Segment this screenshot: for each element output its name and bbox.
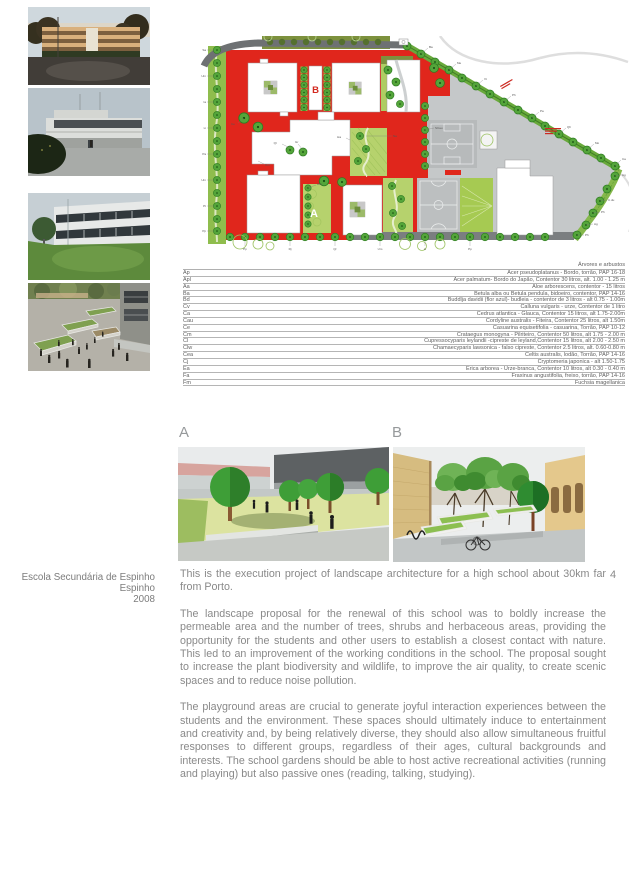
paragraph-playground: The playground areas are crucial to gene…: [180, 701, 606, 781]
plan-species-label: Li: [204, 126, 207, 130]
legend-species-code: Cau: [183, 318, 219, 324]
legend-species-desc: Acer palmatum- Bordo do Japão, Contentor…: [219, 277, 625, 283]
legend-row: Bd Buddlja davidii (flor azul)- budleia …: [183, 297, 625, 304]
plan-species-label: Pa: [540, 109, 544, 113]
plan-species-label: Na: [393, 134, 397, 138]
legend-row: Fa Fraxinus angustifolia, freixo, torrão…: [183, 373, 625, 380]
legend-species-code: Cl: [183, 338, 219, 344]
legend-row: Apl Acer palmatum- Bordo do Japão, Conte…: [183, 277, 625, 284]
legend-species-desc: Acer pseudoplatanus - Bordo, torrão, PAP…: [219, 270, 625, 276]
legend-species-code: Apl: [183, 277, 219, 283]
plan-species-label: Qh: [567, 125, 571, 129]
plan-species-label: Um: [201, 74, 206, 78]
portfolio-page: Sa Um Ia Li Pa Um Pt Pp Ba Me Vt Ph Pa Q…: [0, 0, 629, 889]
legend-species-desc: Celtis australis, lodão, Torrão, PAP 14-…: [219, 352, 625, 358]
plan-species-label: Gr: [295, 140, 298, 144]
plan-species-label: Sa: [202, 48, 206, 52]
legend-species-code: Cj: [183, 359, 219, 365]
legend-header: Árvores e arbustos: [183, 262, 625, 270]
legend-species-desc: Calluna vulgaris - urze, Contentor de 1 …: [219, 304, 625, 310]
render-b-street-perspective: [393, 447, 585, 562]
plan-species-label: Pp: [468, 247, 472, 251]
render-a-courtyard-perspective: [178, 447, 389, 561]
legend-species-code: Bd: [183, 297, 219, 303]
plan-species-label: Ha: [337, 135, 341, 139]
legend-row: Ea Erica arborea - Urze-branca, Contento…: [183, 366, 625, 373]
legend-species-desc: Buddlja davidii (flor azul)- budleia - c…: [219, 297, 625, 303]
plan-species-label: Ca: [622, 157, 626, 161]
photo-school-facade-dusk: [28, 7, 150, 85]
plan-species-label: Ag: [594, 222, 598, 226]
legend-species-desc: Chamaecyparis lawsonica - falso cipreste…: [219, 345, 625, 351]
legend-species-code: Fa: [183, 373, 219, 379]
plan-species-label: Li: [424, 247, 427, 251]
plan-species-label: Pt: [203, 204, 206, 208]
legend-species-code: Cea: [183, 352, 219, 358]
legend-species-code: Cv: [183, 304, 219, 310]
project-location: Espinho: [18, 583, 155, 594]
plan-species-label: Um: [265, 163, 270, 167]
plan-species-label: Pp: [202, 229, 206, 233]
plan-label-b: B: [312, 85, 319, 96]
paragraph-intro: This is the execution project of landsca…: [180, 568, 606, 595]
legend-species-code: Ca: [183, 311, 219, 317]
legend-row: Cv Calluna vulgaris - urze, Contentor de…: [183, 304, 625, 311]
legend-species-desc: Fuchsia magellanica: [219, 380, 625, 386]
legend-species-code: Clw: [183, 345, 219, 351]
legend-row: Ap Acer pseudoplatanus - Bordo, torrão, …: [183, 270, 625, 277]
legend-species-code: Ea: [183, 366, 219, 372]
paragraph-proposal: The landscape proposal for the renewal o…: [180, 608, 606, 688]
site-plan: Sa Um Ia Li Pa Um Pt Pp Ba Me Vt Ph Pa Q…: [200, 36, 629, 252]
legend-species-desc: Cordyline australis - Fiteira, Contentor…: [219, 318, 625, 324]
legend-species-code: Ce: [183, 325, 219, 331]
legend-species-code: Ba: [183, 291, 219, 297]
photo-school-lawn: [28, 193, 150, 280]
render-b-label: B: [392, 424, 402, 441]
legend-row: Cau Cordyline australis - Fiteira, Conte…: [183, 318, 625, 325]
legend-row: Cea Celtis australis, lodão, Torrão, PAP…: [183, 352, 625, 359]
plan-species-label: Qr: [274, 141, 277, 145]
page-number: 4: [610, 569, 616, 581]
legend-species-code: Cm: [183, 332, 219, 338]
render-a-label: A: [179, 424, 189, 441]
project-title-block: Escola Secundária de Espinho Espinho 200…: [18, 572, 155, 605]
legend-row: Ba Betula alba ou Betula pendula, bidoei…: [183, 291, 625, 298]
plan-species-label: Um: [201, 178, 206, 182]
plan-species-label: Ph: [585, 233, 589, 237]
legend-row: Ca Cedrus atlantica - Glauca, Contentor …: [183, 311, 625, 318]
legend-species-desc: Aloe arborescens, contentor - 15 litros: [219, 284, 625, 290]
legend-row: Cj Cryptomeria japonica - alt 1.50-1.75: [183, 359, 625, 366]
plan-species-label: Um: [378, 247, 383, 251]
legend-species-code: Fm: [183, 380, 219, 386]
legend-row: Cm Crataegus monogyna - Pilriteiro, Cont…: [183, 332, 625, 339]
plan-species-label: Me: [457, 61, 461, 65]
project-year: 2008: [18, 594, 155, 605]
plan-species-label: SCau: [435, 126, 443, 130]
legend-species-desc: Casuarina equisetifolia - casuarina, Tor…: [219, 325, 625, 331]
legend-species-desc: Betula alba ou Betula pendula, bidoeiro,…: [219, 291, 625, 297]
plan-species-label: Ce: [231, 122, 235, 126]
plan-species-label: ALu: [317, 182, 323, 186]
plan-label-a: A: [310, 208, 318, 220]
legend-rows: Ap Acer pseudoplatanus - Bordo, torrão, …: [183, 270, 625, 386]
project-title: Escola Secundária de Espinho: [18, 572, 155, 583]
site-plan-figure: Sa Um Ia Li Pa Um Pt Pp Ba Me Vt Ph Pa Q…: [200, 36, 629, 252]
plan-species-label: C.du: [608, 198, 615, 202]
legend-species-desc: Erica arborea - Urze-branca, Contentor 1…: [219, 366, 625, 372]
legend-row: Fm Fuchsia magellanica: [183, 380, 625, 387]
legend-species-code: Ap: [183, 270, 219, 276]
legend-species-desc: Cryptomeria japonica - alt 1.50-1.75: [219, 359, 625, 365]
legend-species-desc: Fraxinus angustifolia, freixo, torrão, P…: [219, 373, 625, 379]
project-description: This is the execution project of landsca…: [180, 568, 606, 795]
plan-species-label: Qr: [333, 247, 336, 251]
legend-species-desc: Cupressocyparis leylandii -cipreste de l…: [219, 338, 625, 344]
photo-school-plaza: [28, 88, 150, 176]
species-legend-table: Árvores e arbustos Ap Acer pseudoplatanu…: [183, 262, 625, 386]
plan-species-label: Ba: [429, 45, 433, 49]
legend-row: Ce Casuarina equisetifolia - casuarina, …: [183, 325, 625, 332]
gate-symbol: [399, 39, 408, 45]
legend-species-desc: Crataegus monogyna - Pilriteiro, Content…: [219, 332, 625, 338]
legend-row: Cl Cupressocyparis leylandii -cipreste d…: [183, 338, 625, 345]
legend-row: Aa Aloe arborescens, contentor - 15 litr…: [183, 284, 625, 291]
plan-species-label: Ph: [512, 93, 516, 97]
plan-species-label: Vt: [484, 77, 487, 81]
photo-courtyard-students: [28, 283, 150, 371]
plan-species-label: Pa: [202, 152, 206, 156]
plan-species-label: Ag: [622, 173, 626, 177]
plan-species-label: Ph: [601, 210, 605, 214]
legend-species-desc: Cedrus atlantica - Glauca, Contentor 15 …: [219, 311, 625, 317]
legend-species-code: Aa: [183, 284, 219, 290]
plan-species-label: Mo: [595, 141, 599, 145]
plan-species-label: Pp: [243, 247, 247, 251]
plan-species-label: Ia: [203, 100, 206, 104]
legend-row: Clw Chamaecyparis lawsonica - falso cipr…: [183, 345, 625, 352]
plan-species-label: Rj: [289, 247, 292, 251]
